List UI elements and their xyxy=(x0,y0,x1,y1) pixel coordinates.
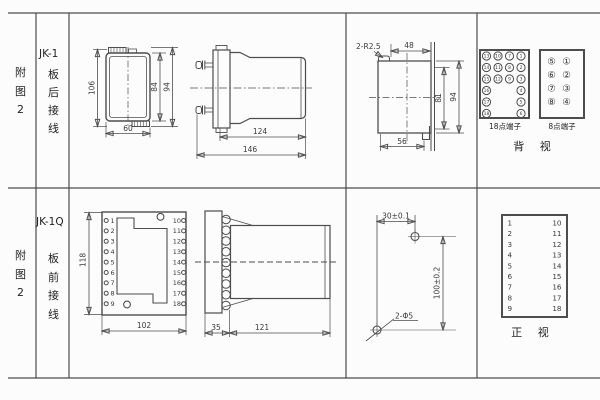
terminal-18pt-caption: 18点端子 xyxy=(472,121,538,132)
svg-text:2: 2 xyxy=(520,65,523,71)
row1-figure-label: 附图2 xyxy=(13,64,28,120)
label-2-phi5: 2-Φ5 xyxy=(395,312,413,321)
dim-121: 121 xyxy=(255,323,270,332)
terminal-block-bottom xyxy=(132,121,150,127)
terminal-8pt-caption: 8点端子 xyxy=(534,121,590,132)
terminal-8pt-view: ⑤ ① ⑥ ② ⑦ ③ ⑧ ④ xyxy=(540,50,584,118)
svg-text:⑤: ⑤ xyxy=(547,57,556,68)
svg-text:⑧: ⑧ xyxy=(547,97,556,108)
svg-text:7: 7 xyxy=(508,54,511,60)
dim-118: 118 xyxy=(79,253,88,268)
jk1-side-view: 124 146 xyxy=(190,46,312,160)
terminal-table-left: 1 2 3 4 5 6 7 8 9 xyxy=(508,219,513,314)
svg-text:1: 1 xyxy=(111,217,115,225)
svg-text:5: 5 xyxy=(520,100,523,106)
svg-text:18: 18 xyxy=(552,304,562,313)
board-left-terminals: 1 2 3 4 5 6 7 8 9 xyxy=(104,217,114,308)
dim-84: 84 xyxy=(150,82,159,92)
jk1-case-front-view: 106 84 94 60 xyxy=(88,47,179,138)
dim-35: 35 xyxy=(211,323,221,332)
dim-102: 102 xyxy=(137,321,152,330)
svg-text:⑥: ⑥ xyxy=(547,70,556,81)
row1-model-label: JK-1 xyxy=(39,48,58,60)
svg-text:11: 11 xyxy=(495,65,501,71)
dim-100: 100±0.2 xyxy=(433,267,442,300)
svg-text:11: 11 xyxy=(173,227,181,235)
stud-bottom xyxy=(196,106,213,115)
svg-text:4: 4 xyxy=(520,88,523,94)
svg-text:3: 3 xyxy=(508,240,513,249)
svg-text:7: 7 xyxy=(111,279,115,287)
svg-text:17: 17 xyxy=(484,100,490,106)
svg-text:①: ① xyxy=(562,57,571,68)
svg-text:15: 15 xyxy=(173,269,181,277)
dim-60: 60 xyxy=(123,124,133,133)
svg-text:15: 15 xyxy=(552,272,561,281)
row2-figure-label: 附图2 xyxy=(13,247,28,303)
svg-text:5: 5 xyxy=(111,258,115,266)
svg-text:⑦: ⑦ xyxy=(547,84,556,95)
jk1-panel-cutout-view: 2-R2.5 48 81 94 56 xyxy=(356,41,464,151)
dim-81: 81 xyxy=(434,93,443,103)
svg-text:18: 18 xyxy=(484,111,490,117)
drill-plan-view: 30±0.1 2-Φ5 100±0.2 xyxy=(366,212,456,342)
terminal-table-right: 10 11 12 13 14 15 16 17 18 xyxy=(552,219,562,314)
drawing-sheet: 106 84 94 60 xyxy=(0,0,600,400)
svg-text:1: 1 xyxy=(520,54,523,60)
row1-wiring-label: 板后接线 xyxy=(46,66,61,138)
label-2-R2.5: 2-R2.5 xyxy=(356,42,381,51)
svg-text:④: ④ xyxy=(562,97,571,108)
terminal-8pt-numbers: ⑤ ① ⑥ ② ⑦ ③ ⑧ ④ xyxy=(547,57,571,109)
row2-model-label: JK-1Q xyxy=(36,216,64,228)
dim-94-cutout: 94 xyxy=(449,92,458,102)
svg-text:14: 14 xyxy=(552,261,562,270)
svg-text:9: 9 xyxy=(111,300,115,308)
svg-text:9: 9 xyxy=(508,304,513,313)
terminal-18pt-view: 13 10 7 1 14 11 8 2 15 12 9 3 16 4 17 5 … xyxy=(480,50,529,118)
drawing-canvas: 106 84 94 60 xyxy=(0,0,600,400)
svg-text:2: 2 xyxy=(508,229,513,238)
svg-text:12: 12 xyxy=(495,77,501,83)
svg-text:10: 10 xyxy=(495,54,501,60)
svg-text:3: 3 xyxy=(111,238,115,246)
svg-text:8: 8 xyxy=(508,293,513,302)
svg-text:13: 13 xyxy=(552,251,561,260)
svg-text:6: 6 xyxy=(520,111,523,117)
dim-146: 146 xyxy=(243,145,258,154)
svg-text:9: 9 xyxy=(508,77,511,83)
svg-text:18: 18 xyxy=(173,300,181,308)
svg-text:15: 15 xyxy=(484,77,490,83)
row2-wiring-label: 板前接线 xyxy=(46,250,61,324)
svg-text:12: 12 xyxy=(173,238,181,246)
svg-text:13: 13 xyxy=(173,248,181,256)
svg-text:17: 17 xyxy=(552,293,561,302)
svg-text:17: 17 xyxy=(173,290,181,298)
dim-94: 94 xyxy=(163,82,172,92)
svg-text:②: ② xyxy=(562,70,571,81)
dim-106: 106 xyxy=(88,81,97,96)
dim-48: 48 xyxy=(404,41,414,50)
svg-text:4: 4 xyxy=(508,251,513,260)
terminal-block-top xyxy=(109,48,137,54)
svg-text:14: 14 xyxy=(173,258,181,266)
svg-text:12: 12 xyxy=(552,240,561,249)
svg-text:6: 6 xyxy=(111,269,115,277)
front-view-caption: 正 视 xyxy=(498,324,568,340)
dim-124: 124 xyxy=(253,127,268,136)
svg-text:10: 10 xyxy=(552,219,562,228)
svg-text:8: 8 xyxy=(111,290,115,298)
svg-text:2: 2 xyxy=(111,227,115,235)
dim-30: 30±0.1 xyxy=(382,212,410,221)
svg-text:3: 3 xyxy=(520,77,523,83)
jk1q-board-front-view: 1 2 3 4 5 6 7 8 9 10 11 12 13 14 15 16 1… xyxy=(79,212,187,335)
svg-text:16: 16 xyxy=(484,88,490,94)
svg-text:13: 13 xyxy=(484,54,490,60)
svg-text:1: 1 xyxy=(508,219,513,228)
terminal-18pt-numbers: 13 10 7 1 14 11 8 2 15 12 9 3 16 4 17 5 … xyxy=(484,54,523,118)
stud-top xyxy=(196,61,213,70)
board-right-terminals: 10 11 12 13 14 15 16 17 18 xyxy=(173,217,186,308)
svg-text:7: 7 xyxy=(508,283,513,292)
svg-text:5: 5 xyxy=(508,261,513,270)
dim-56: 56 xyxy=(397,137,407,146)
svg-text:③: ③ xyxy=(562,84,571,95)
svg-text:8: 8 xyxy=(508,65,511,71)
svg-text:11: 11 xyxy=(552,229,561,238)
rear-view-caption: 背 视 xyxy=(500,138,570,154)
svg-text:14: 14 xyxy=(484,65,490,71)
jk1q-side-view: 35 121 xyxy=(195,211,337,337)
svg-text:6: 6 xyxy=(508,272,513,281)
svg-text:16: 16 xyxy=(173,279,181,287)
terminal-table-view: 1 2 3 4 5 6 7 8 9 10 11 12 13 14 15 16 1… xyxy=(502,215,567,317)
svg-text:4: 4 xyxy=(111,248,115,256)
svg-text:16: 16 xyxy=(552,283,562,292)
svg-text:10: 10 xyxy=(173,217,181,225)
